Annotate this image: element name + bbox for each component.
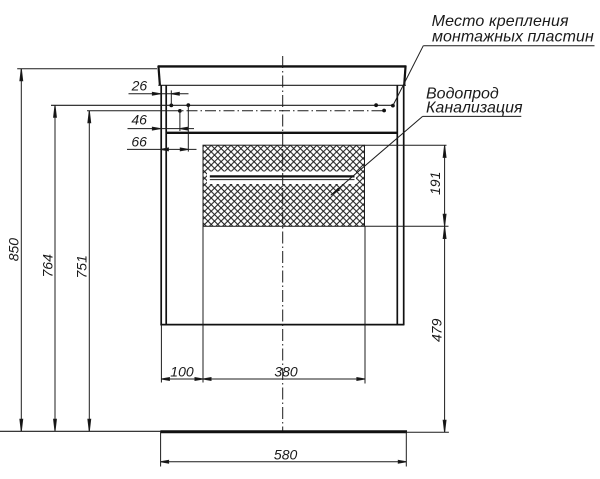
- svg-text:751: 751: [73, 255, 89, 278]
- svg-text:46: 46: [131, 111, 147, 127]
- svg-text:764: 764: [39, 254, 55, 278]
- svg-text:191: 191: [427, 172, 443, 195]
- svg-text:100: 100: [170, 364, 194, 380]
- svg-text:66: 66: [131, 133, 147, 149]
- svg-text:Место крепления: Место крепления: [432, 13, 569, 30]
- svg-text:26: 26: [131, 77, 148, 93]
- svg-text:479: 479: [429, 318, 445, 342]
- svg-text:монтажных пластин: монтажных пластин: [432, 29, 594, 46]
- svg-text:580: 580: [274, 447, 298, 463]
- svg-text:Канализация: Канализация: [426, 100, 523, 117]
- svg-text:380: 380: [274, 364, 298, 380]
- svg-text:850: 850: [6, 238, 22, 262]
